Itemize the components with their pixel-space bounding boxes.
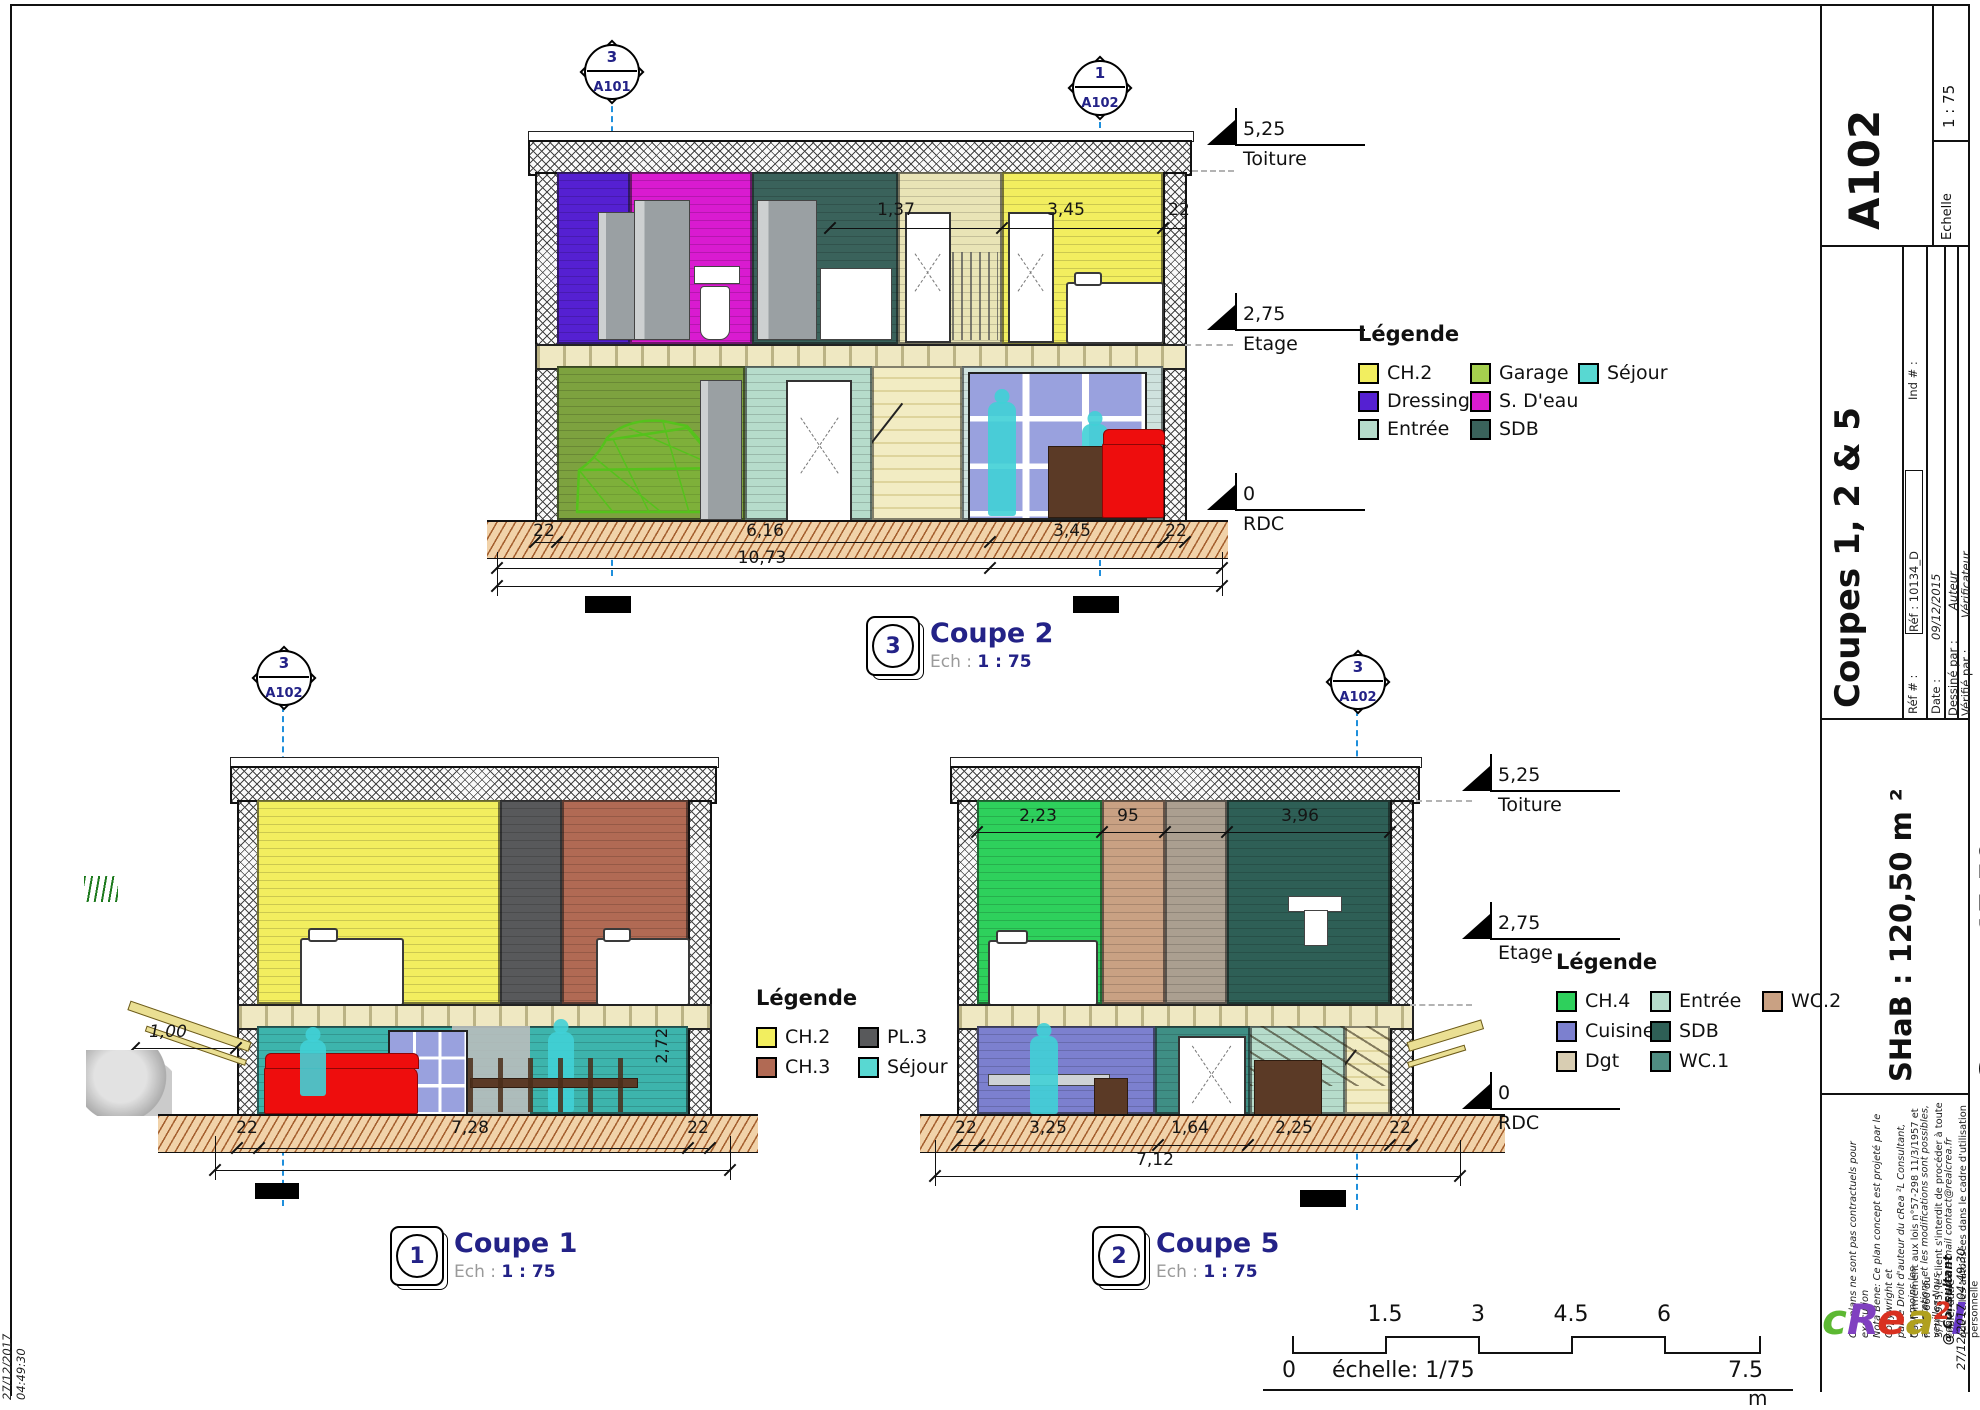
dim-label: 22 bbox=[236, 1118, 258, 1138]
bed bbox=[596, 938, 690, 1006]
dim-label: 3,96 bbox=[1281, 806, 1319, 826]
scale-unit-label: m bbox=[1748, 1386, 1767, 1410]
legend-swatch bbox=[1650, 1051, 1671, 1072]
door bbox=[1008, 212, 1054, 343]
sink bbox=[694, 266, 740, 284]
plot-timestamp: 27/12/2017 04:49:30 bbox=[1954, 1200, 1968, 1370]
legend-swatch bbox=[1470, 419, 1491, 440]
dining-chairs bbox=[468, 1058, 638, 1112]
room-wc2 bbox=[1102, 800, 1165, 1004]
dim-label: 22 bbox=[1168, 200, 1190, 220]
area-summary: SHaB : 120,50 m ² Garage : 17,50 m ² Réf… bbox=[1834, 730, 1980, 1082]
plant-marks bbox=[84, 876, 118, 902]
dim-label: 22 bbox=[1165, 521, 1187, 541]
legend-swatch bbox=[756, 1057, 777, 1078]
legend-item: SDB bbox=[1470, 418, 1539, 440]
view-title: Coupe 5 bbox=[1156, 1228, 1279, 1259]
legend-swatch bbox=[1556, 1021, 1577, 1042]
legend-item: Entrée bbox=[1358, 418, 1449, 440]
section-marker-3-A101: 3 A101 bbox=[584, 44, 640, 100]
dim-label: 3,45 bbox=[1053, 521, 1091, 541]
toilet bbox=[700, 286, 730, 340]
legend-title: Légende bbox=[1358, 322, 1459, 346]
view-scale: Ech : 1 : 75 bbox=[1156, 1262, 1258, 1282]
person-silhouette bbox=[1030, 1036, 1058, 1114]
legend-swatch bbox=[1556, 1051, 1577, 1072]
level-marker-toiture: 5,25 Toiture bbox=[1215, 118, 1365, 180]
scale-label: Echelle bbox=[1940, 152, 1955, 240]
room-dgt-upper bbox=[1165, 800, 1227, 1004]
legend-title: Légende bbox=[1556, 950, 1657, 974]
dim-line bbox=[957, 1145, 1410, 1146]
ground-hatch bbox=[920, 1114, 1505, 1153]
legend-item: Séjour bbox=[1578, 362, 1668, 384]
legend-swatch bbox=[1358, 391, 1379, 412]
field-date-value: 09/12/2015 bbox=[1929, 520, 1943, 640]
dim-line bbox=[134, 1048, 236, 1049]
section-marker-3-A102: 3 A102 bbox=[1330, 654, 1386, 710]
view-badge: 1 bbox=[390, 1226, 444, 1286]
wall-right bbox=[688, 800, 712, 1118]
field-drawn-label: Dessiné par : bbox=[1946, 616, 1960, 716]
legend-item: PL.3 bbox=[858, 1026, 927, 1048]
legend-item: CH.3 bbox=[756, 1056, 830, 1078]
plot-timestamp-left: 27/12/2017 04:49:30 bbox=[0, 1290, 28, 1400]
dim-label: 7,28 bbox=[451, 1118, 489, 1138]
dim-line bbox=[237, 1148, 708, 1149]
view-badge: 2 bbox=[1092, 1226, 1146, 1286]
dim-line bbox=[497, 568, 1222, 569]
scale-bar-segment bbox=[1664, 1336, 1761, 1354]
entry-door bbox=[786, 380, 852, 522]
sofa bbox=[1102, 442, 1164, 518]
view-title: Coupe 1 bbox=[454, 1228, 577, 1259]
field-checked-value: Vérificateur bbox=[1959, 500, 1973, 618]
dim-line bbox=[977, 832, 1390, 833]
garage-door bbox=[700, 380, 742, 520]
field-date-label: Date : bbox=[1929, 650, 1943, 714]
legend-swatch bbox=[858, 1057, 879, 1078]
view-scale: Ech : 1 : 75 bbox=[930, 652, 1032, 672]
level-marker-toiture: 5,25 Toiture bbox=[1470, 764, 1620, 826]
sink-pedestal bbox=[1304, 910, 1328, 946]
dim-label-total: 10,73 bbox=[738, 548, 787, 568]
dim-line bbox=[497, 586, 1222, 587]
scale-max-label: 7.5 bbox=[1728, 1358, 1763, 1383]
vanity bbox=[820, 268, 892, 340]
scale-bar-segment bbox=[1478, 1336, 1573, 1354]
scale-value: 1 : 75 bbox=[1940, 18, 1958, 128]
drawing-title: Coupes 1, 2 & 5 bbox=[1828, 258, 1868, 708]
wall-right bbox=[1390, 800, 1414, 1118]
legend-item: Entrée bbox=[1650, 990, 1741, 1012]
dresser bbox=[1254, 1060, 1322, 1116]
dim-line bbox=[535, 542, 1183, 543]
staircase bbox=[872, 366, 962, 520]
level-marker-rdc: 0 RDC bbox=[1470, 1082, 1620, 1144]
view-title: Coupe 2 bbox=[930, 618, 1053, 649]
legend-title: Légende bbox=[756, 986, 857, 1010]
legend-item: CH.4 bbox=[1556, 990, 1630, 1012]
legend-item: Dgt bbox=[1556, 1050, 1619, 1072]
dim-label: 1,37 bbox=[877, 200, 915, 220]
person-silhouette bbox=[988, 402, 1016, 516]
legend-item: Séjour bbox=[858, 1056, 948, 1078]
field-drawn-value: Auteur bbox=[1946, 530, 1960, 610]
section-marker-3-A102: 3 A102 bbox=[256, 650, 312, 706]
legend-item: CH.2 bbox=[756, 1026, 830, 1048]
dim-label: 1,64 bbox=[1171, 1118, 1209, 1138]
scale-tick-label: 1.5 bbox=[1368, 1302, 1403, 1327]
sheet-number: A102 bbox=[1840, 30, 1889, 230]
scale-tick-label: 6 bbox=[1657, 1302, 1671, 1327]
person-silhouette bbox=[300, 1040, 326, 1096]
ground-hatch bbox=[487, 520, 1228, 559]
dim-label: 22 bbox=[687, 1118, 709, 1138]
bush bbox=[86, 1050, 172, 1116]
roof-insulation bbox=[950, 766, 1420, 804]
section-cut-mark bbox=[585, 596, 631, 613]
shower bbox=[757, 200, 817, 340]
dim-label: 3,25 bbox=[1029, 1118, 1067, 1138]
legend-swatch bbox=[756, 1027, 777, 1048]
sheet-border-left bbox=[10, 4, 12, 1396]
view-scale: Ech : 1 : 75 bbox=[454, 1262, 556, 1282]
sheet-border-top bbox=[10, 4, 1968, 6]
wardrobe bbox=[598, 212, 638, 340]
legend-item: Cuisine bbox=[1556, 1020, 1655, 1042]
dim-label: 1,00 bbox=[149, 1022, 187, 1042]
legend-swatch bbox=[1762, 991, 1783, 1012]
drawing-sheet: { "coupe2": { "title": "Coupe 2", "badge… bbox=[0, 0, 1980, 1400]
legend-swatch bbox=[1578, 363, 1599, 384]
crea-logo: cRea2l bbox=[1822, 1295, 1942, 1375]
dim-label: 22 bbox=[1389, 1118, 1411, 1138]
field-ref-label: Réf # : bbox=[1906, 640, 1920, 714]
bed bbox=[1066, 282, 1164, 344]
dim-label: 95 bbox=[1117, 806, 1139, 826]
scale-bar-segment bbox=[1571, 1336, 1666, 1354]
field-ind-label: Ind # : bbox=[1906, 330, 1920, 400]
section-marker-1-A102: 1 A102 bbox=[1072, 60, 1128, 116]
section-cut-mark bbox=[255, 1183, 299, 1199]
door bbox=[1178, 1036, 1246, 1118]
dim-line bbox=[215, 1170, 730, 1171]
area-shab: SHaB : 120,50 m ² bbox=[1884, 788, 1918, 1082]
bed bbox=[300, 938, 404, 1006]
field-ref-value: Réf : 10134_D bbox=[1905, 470, 1923, 634]
roof-insulation bbox=[230, 766, 717, 804]
shower bbox=[634, 200, 690, 340]
scale-tick-label: 4.5 bbox=[1554, 1302, 1589, 1327]
section-cut-mark bbox=[1300, 1190, 1346, 1207]
sheet-border-bottom-partial bbox=[1263, 1389, 1793, 1391]
door bbox=[905, 212, 951, 343]
legend-item: CH.2 bbox=[1358, 362, 1432, 384]
dim-label: 6,16 bbox=[746, 521, 784, 541]
scale-ratio-label: échelle: 1/75 bbox=[1332, 1358, 1475, 1383]
sofa bbox=[264, 1066, 418, 1114]
legend-swatch bbox=[1650, 1021, 1671, 1042]
view-badge: 3 bbox=[866, 616, 920, 676]
legend-item: Dressing bbox=[1358, 390, 1470, 412]
legend-swatch bbox=[858, 1027, 879, 1048]
dim-label: 3,45 bbox=[1047, 200, 1085, 220]
legend-item: WC.2 bbox=[1762, 990, 1841, 1012]
legend-item: SDB bbox=[1650, 1020, 1719, 1042]
legend-swatch bbox=[1358, 419, 1379, 440]
legend-item: WC.1 bbox=[1650, 1050, 1729, 1072]
porch-roof bbox=[1407, 1019, 1485, 1051]
dim-label-height: 2,72 bbox=[652, 1028, 671, 1064]
legend-swatch bbox=[1358, 363, 1379, 384]
legend-swatch bbox=[1650, 991, 1671, 1012]
stair-rail bbox=[952, 252, 998, 340]
roof-insulation bbox=[528, 140, 1192, 176]
legend-item: S. D'eau bbox=[1470, 390, 1578, 412]
scale-tick-label: 3 bbox=[1471, 1302, 1485, 1327]
scale-zero-label: 0 bbox=[1282, 1358, 1296, 1383]
room-cuisine bbox=[977, 1026, 1155, 1114]
legend-swatch bbox=[1470, 391, 1491, 412]
legend-item: Garage bbox=[1470, 362, 1569, 384]
dim-line bbox=[830, 228, 1185, 229]
dim-label-total: 7,12 bbox=[1136, 1150, 1174, 1170]
field-checked-label: Vérifié par : bbox=[1959, 622, 1973, 716]
dim-line bbox=[935, 1176, 1460, 1177]
section-cut-mark bbox=[1073, 596, 1119, 613]
level-marker-etage: 2,75 Etage bbox=[1215, 303, 1365, 365]
area-garage: Garage : 17,50 m ² bbox=[1974, 778, 1980, 1082]
bed bbox=[988, 940, 1098, 1006]
scale-bar-segment bbox=[1292, 1336, 1387, 1354]
chair bbox=[1094, 1078, 1128, 1116]
legend-swatch bbox=[1470, 363, 1491, 384]
scale-bar-segment bbox=[1385, 1336, 1480, 1354]
dim-label: 22 bbox=[955, 1118, 977, 1138]
dim-label: 2,23 bbox=[1019, 806, 1057, 826]
level-marker-rdc: 0 RDC bbox=[1215, 483, 1365, 545]
legend-swatch bbox=[1556, 991, 1577, 1012]
dim-label: 2,25 bbox=[1275, 1118, 1313, 1138]
room-pl3 bbox=[500, 800, 562, 1004]
